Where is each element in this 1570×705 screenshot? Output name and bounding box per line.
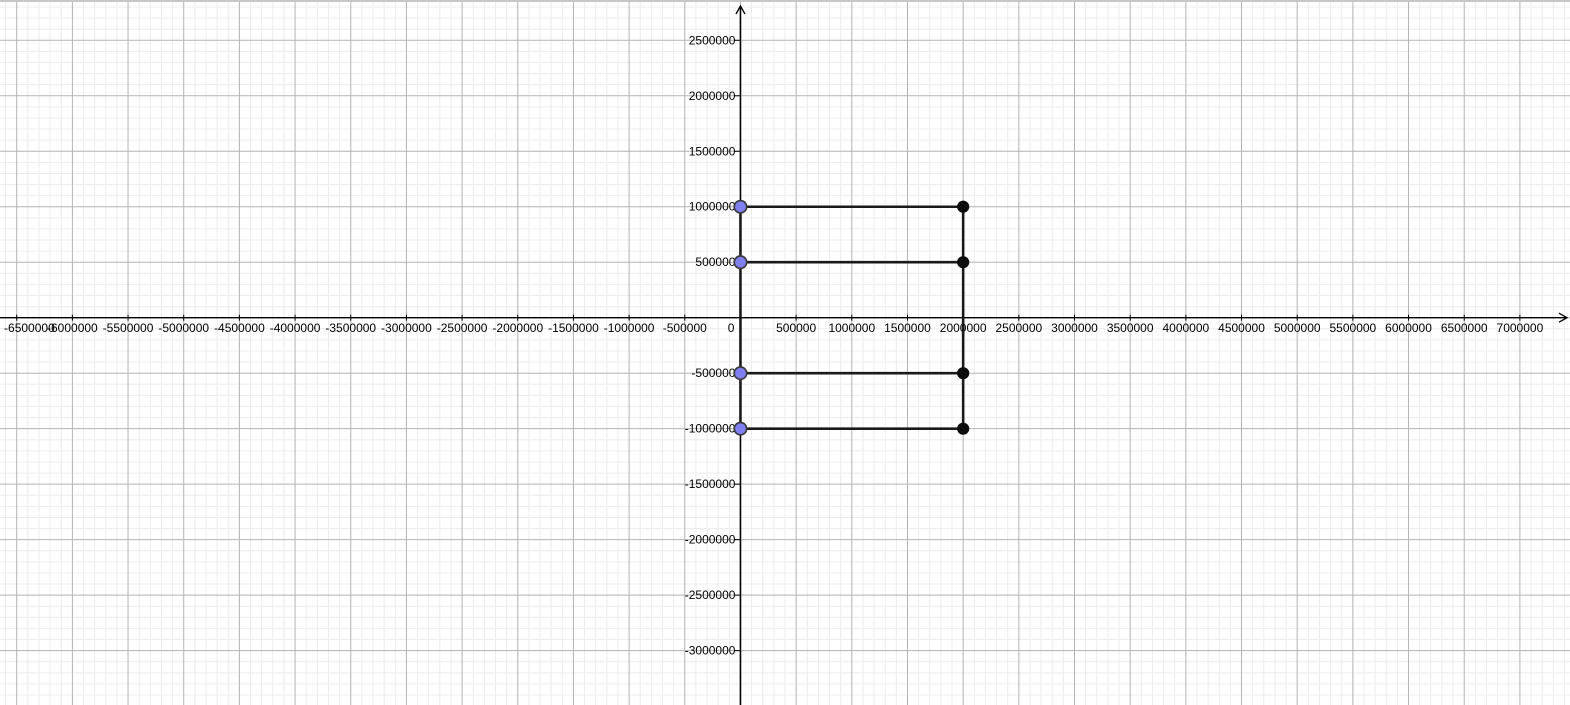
x-axis-tick-label: -5000000 — [158, 321, 209, 335]
y-axis-tick-label: -500000 — [691, 366, 735, 380]
y-axis-tick-label: 1000000 — [689, 200, 736, 214]
x-axis-tick-label: 1000000 — [828, 321, 875, 335]
minor-grid — [0, 2, 1570, 705]
free-point[interactable] — [734, 201, 746, 213]
x-axis-tick-label: -1000000 — [604, 321, 655, 335]
x-axis-tick-label: 4500000 — [1218, 321, 1265, 335]
x-axis-tick-label: -3500000 — [325, 321, 376, 335]
y-axis-tick-label: -1000000 — [685, 422, 736, 436]
y-axis-tick-label: 2500000 — [689, 33, 736, 47]
x-axis-tick-label: -4500000 — [214, 321, 265, 335]
x-axis-tick-label: 4000000 — [1162, 321, 1209, 335]
x-axis-tick-label: 500000 — [776, 321, 816, 335]
free-point[interactable] — [734, 367, 746, 379]
coordinate-plane[interactable]: -6500000-6000000-5500000-5000000-4500000… — [0, 2, 1570, 705]
y-axis-tick-label: 500000 — [695, 255, 735, 269]
x-axis-tick-label: 3000000 — [1051, 321, 1098, 335]
x-axis-tick-label: -3000000 — [381, 321, 432, 335]
dependent-point[interactable] — [958, 423, 969, 434]
y-axis-tick-label: 1500000 — [689, 144, 736, 158]
y-axis-tick-label: -2000000 — [685, 533, 736, 547]
dependent-point[interactable] — [958, 368, 969, 379]
x-axis-tick-label: -2000000 — [492, 321, 543, 335]
x-axis-tick-label: -2500000 — [437, 321, 488, 335]
y-axis-tick-label: -1500000 — [685, 477, 736, 491]
x-axis-tick-label: 1500000 — [884, 321, 931, 335]
y-axis-tick-label: -2500000 — [685, 588, 736, 602]
x-axis-tick-label: 3500000 — [1107, 321, 1154, 335]
dependent-point[interactable] — [958, 257, 969, 268]
geogebra-graphics-view[interactable]: -6500000-6000000-5500000-5000000-4500000… — [0, 0, 1570, 705]
x-axis-tick-label: 5000000 — [1274, 321, 1321, 335]
x-axis-tick-label: 2500000 — [995, 321, 1042, 335]
x-axis-tick-label: 0 — [728, 321, 735, 335]
free-point[interactable] — [734, 422, 746, 434]
x-axis-tick-label: -1500000 — [548, 321, 599, 335]
x-axis-tick-label: -5500000 — [103, 321, 154, 335]
x-axis-tick-label: -6000000 — [47, 321, 98, 335]
x-axis-tick-label: -4000000 — [270, 321, 321, 335]
y-axis-tick-label: 2000000 — [689, 89, 736, 103]
x-axis-tick-label: 6500000 — [1441, 321, 1488, 335]
x-axis-tick-label: -500000 — [663, 321, 707, 335]
y-axis-tick-label: -3000000 — [685, 644, 736, 658]
dependent-point[interactable] — [958, 201, 969, 212]
x-axis-tick-label: 6000000 — [1385, 321, 1432, 335]
x-axis-tick-label: 5500000 — [1330, 321, 1377, 335]
free-point[interactable] — [734, 256, 746, 268]
axes — [0, 6, 1567, 705]
x-axis-tick-label: 7000000 — [1497, 321, 1544, 335]
